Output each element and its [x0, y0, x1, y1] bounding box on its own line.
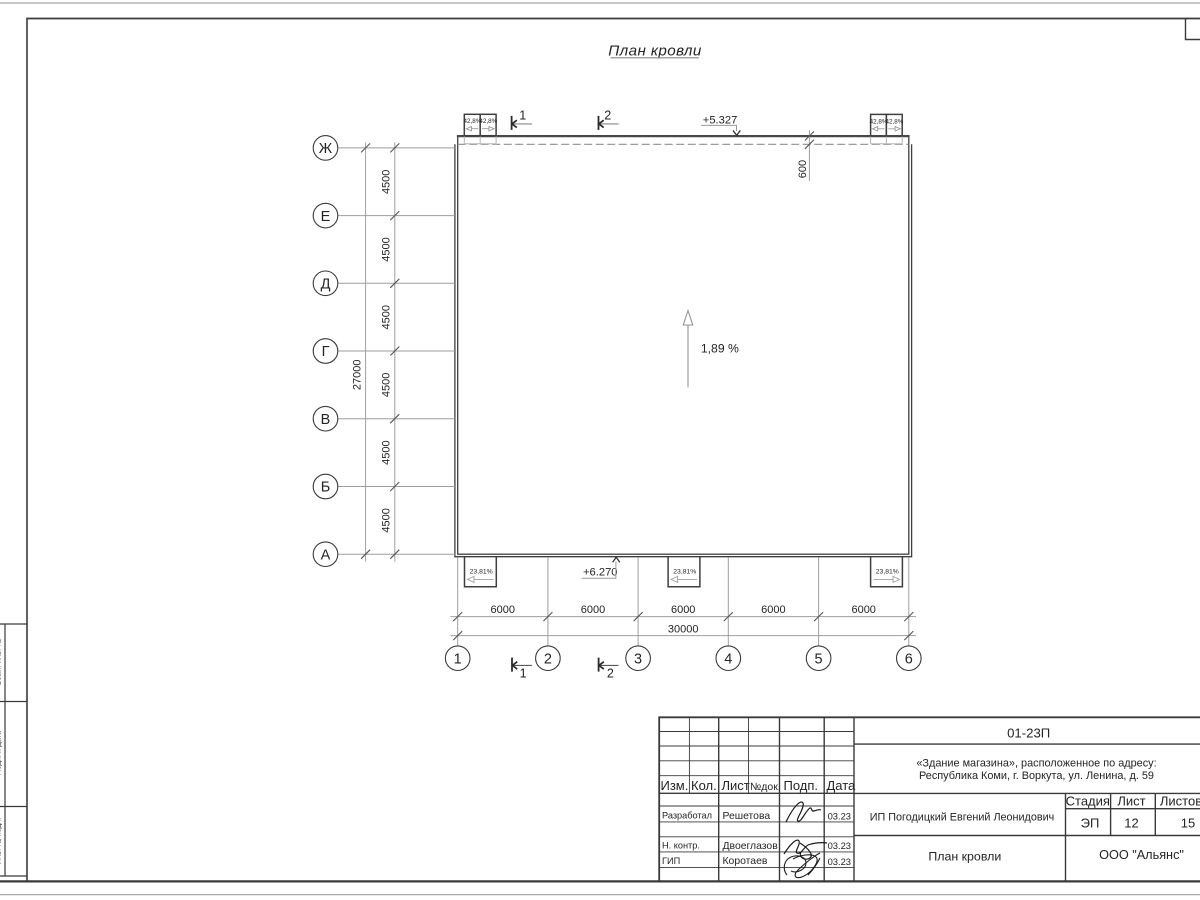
- svg-text:42,8%: 42,8%: [479, 118, 497, 125]
- svg-text:ООО "Альянс": ООО "Альянс": [1099, 848, 1184, 862]
- svg-text:Республика Коми, г. Воркута, у: Республика Коми, г. Воркута, ул. Ленина,…: [919, 770, 1154, 782]
- svg-text:«Здание магазина», расположенн: «Здание магазина», расположенное по адре…: [916, 758, 1156, 770]
- svg-text:6000: 6000: [671, 604, 695, 616]
- svg-text:12: 12: [1124, 816, 1138, 831]
- svg-text:Стадия: Стадия: [1066, 794, 1110, 809]
- svg-text:23,81%: 23,81%: [673, 568, 696, 575]
- svg-text:Дата: Дата: [827, 778, 857, 793]
- svg-text:4500: 4500: [381, 237, 393, 261]
- svg-text:Е: Е: [321, 209, 331, 225]
- svg-text:2: 2: [607, 667, 614, 681]
- svg-text:Ж: Ж: [319, 141, 333, 157]
- svg-text:6000: 6000: [851, 604, 875, 616]
- svg-text:4: 4: [724, 651, 732, 667]
- svg-text:А: А: [321, 547, 331, 563]
- svg-text:Двоеглазов: Двоеглазов: [723, 841, 779, 852]
- svg-text:Н. контр.: Н. контр.: [662, 841, 700, 851]
- svg-text:Подп. и дата: Подп. и дата: [0, 730, 3, 775]
- svg-text:4500: 4500: [381, 373, 393, 397]
- svg-text:Изм.: Изм.: [661, 778, 689, 793]
- svg-text:ГИП: ГИП: [662, 856, 680, 866]
- svg-text:42,8%: 42,8%: [885, 118, 903, 125]
- svg-text:+6.270: +6.270: [583, 567, 618, 579]
- svg-text:27000: 27000: [351, 360, 363, 391]
- svg-text:Б: Б: [321, 480, 331, 496]
- svg-text:4500: 4500: [381, 305, 393, 329]
- svg-text:6: 6: [905, 651, 913, 667]
- svg-text:6000: 6000: [761, 604, 785, 616]
- svg-text:Подп.: Подп.: [784, 778, 819, 793]
- svg-text:Д: Д: [321, 277, 331, 293]
- svg-text:ЭП: ЭП: [1081, 816, 1100, 831]
- svg-text:23,81%: 23,81%: [470, 568, 493, 575]
- svg-text:1: 1: [520, 667, 527, 681]
- svg-text:6000: 6000: [491, 604, 515, 616]
- svg-text:01-23П: 01-23П: [1007, 726, 1050, 741]
- svg-text:Коротаев: Коротаев: [723, 856, 768, 867]
- svg-text:Взам. инв. №: Взам. инв. №: [0, 639, 3, 685]
- svg-text:03.23: 03.23: [828, 810, 851, 821]
- svg-text:Г: Г: [322, 344, 330, 360]
- svg-text:В: В: [321, 412, 331, 428]
- svg-text:600: 600: [797, 160, 809, 178]
- svg-text:№док.: №док.: [750, 781, 781, 793]
- svg-text:03.23: 03.23: [828, 840, 851, 851]
- svg-text:Лист: Лист: [1117, 794, 1145, 809]
- svg-text:Инв. № подл.: Инв. № подл.: [0, 818, 3, 865]
- svg-text:Листов: Листов: [1160, 794, 1200, 809]
- svg-text:2: 2: [544, 651, 552, 667]
- svg-text:03.23: 03.23: [828, 856, 851, 867]
- svg-text:Разработал: Разработал: [662, 811, 712, 821]
- svg-text:Кол.: Кол.: [691, 778, 717, 793]
- svg-text:+5.327: +5.327: [703, 115, 738, 127]
- svg-text:Лист: Лист: [722, 778, 750, 793]
- svg-text:4500: 4500: [381, 440, 393, 464]
- svg-text:1,89 %: 1,89 %: [701, 341, 739, 355]
- svg-text:4500: 4500: [381, 170, 393, 194]
- svg-text:6000: 6000: [581, 604, 605, 616]
- svg-text:4500: 4500: [381, 508, 393, 532]
- svg-text:30000: 30000: [668, 623, 699, 635]
- svg-text:3: 3: [634, 651, 642, 667]
- svg-text:Решетова: Решетова: [723, 811, 771, 822]
- svg-text:1: 1: [519, 109, 526, 123]
- svg-text:План кровли: План кровли: [608, 43, 702, 60]
- svg-text:План кровли: План кровли: [928, 850, 1001, 864]
- svg-text:ИП Погодицкий Евгений Леонидов: ИП Погодицкий Евгений Леонидович: [870, 812, 1055, 824]
- svg-text:15: 15: [1181, 816, 1195, 831]
- svg-text:2: 2: [604, 109, 611, 123]
- svg-text:23,81%: 23,81%: [876, 568, 899, 575]
- svg-text:5: 5: [815, 651, 823, 667]
- svg-text:1: 1: [454, 651, 462, 667]
